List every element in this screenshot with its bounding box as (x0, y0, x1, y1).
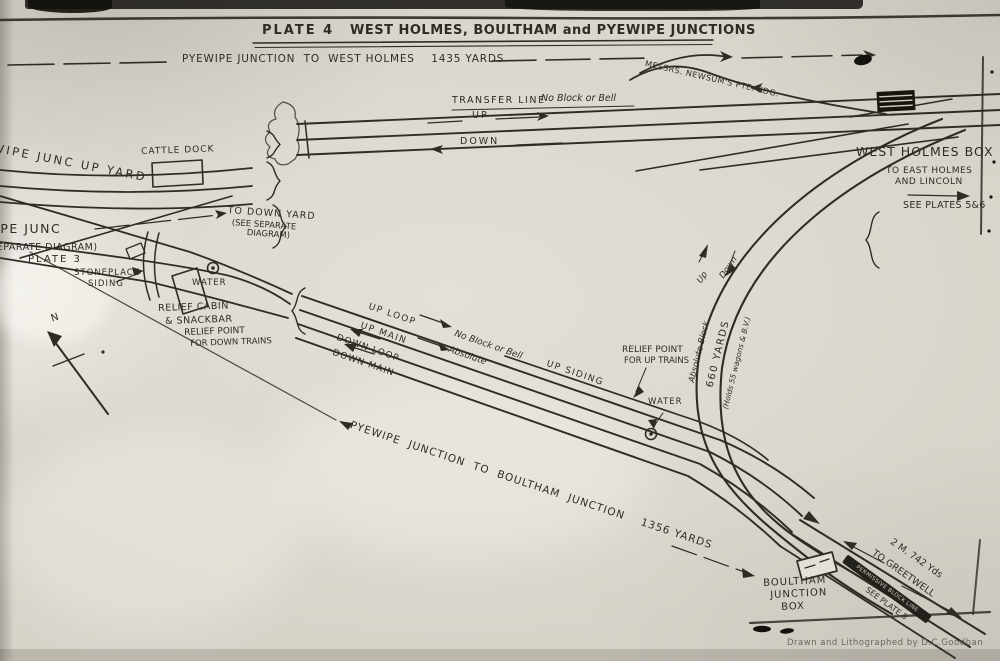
route-pyewipe-westholmes: PYEWIPE JUNCTION TO WEST HOLMES 1435 YAR… (182, 54, 504, 65)
to-east-holmes-label-2: AND LINCOLN (895, 178, 963, 187)
separate-diagram-label: (SEPARATE DIAGRAM) (0, 243, 98, 253)
plate-borders (0, 15, 1000, 623)
page-title: WEST HOLMES, BOULTHAM and PYEWIPE JUNCTI… (350, 24, 756, 38)
down-direction-label: DOWN (460, 137, 499, 147)
plate-3-label: PLATE 3 (28, 255, 82, 266)
to-east-holmes-label-1: TO EAST HOLMES (886, 167, 972, 176)
water-mid-label: WATER (648, 398, 683, 407)
plate4-junction-diagram: PLATE 4 WEST HOLMES, BOULTHAM and PYEWIP… (0, 0, 1000, 661)
up-direction-label: UP (472, 111, 489, 121)
ink-smudges (753, 53, 996, 634)
east-holmes-arrow-line (908, 195, 958, 196)
no-block-bell-top-label: No Block or Bell (541, 94, 616, 104)
transfer-line-label: TRANSFER LINE (452, 96, 545, 106)
west-holmes-box-icon (877, 90, 916, 112)
credit-line: Drawn and Lithographed by D.C.Goodban (787, 639, 983, 648)
continuation-braces (267, 131, 879, 334)
west-holmes-box-label: WEST HOLMES BOX (856, 145, 994, 158)
stoneplace-label-1: STONEPLACE (74, 269, 140, 278)
see-plates-5-6-label: SEE PLATES 5&6 (903, 201, 986, 211)
compass-icon (52, 338, 108, 414)
water-left-label: WATER (192, 279, 227, 288)
pyewipe-junc-label: PYEWIPE JUNC (0, 222, 61, 235)
boultham-box-label-3: BOX (781, 602, 805, 614)
stoneplace-label-2: SIDING (88, 280, 124, 289)
relief-point-up-label-1: RELIEF POINT (622, 346, 683, 355)
relief-point-up-label-2: FOR UP TRAINS (624, 357, 689, 366)
plate-number: PLATE 4 (262, 24, 334, 38)
stoneplace-siding-lines (116, 232, 159, 300)
